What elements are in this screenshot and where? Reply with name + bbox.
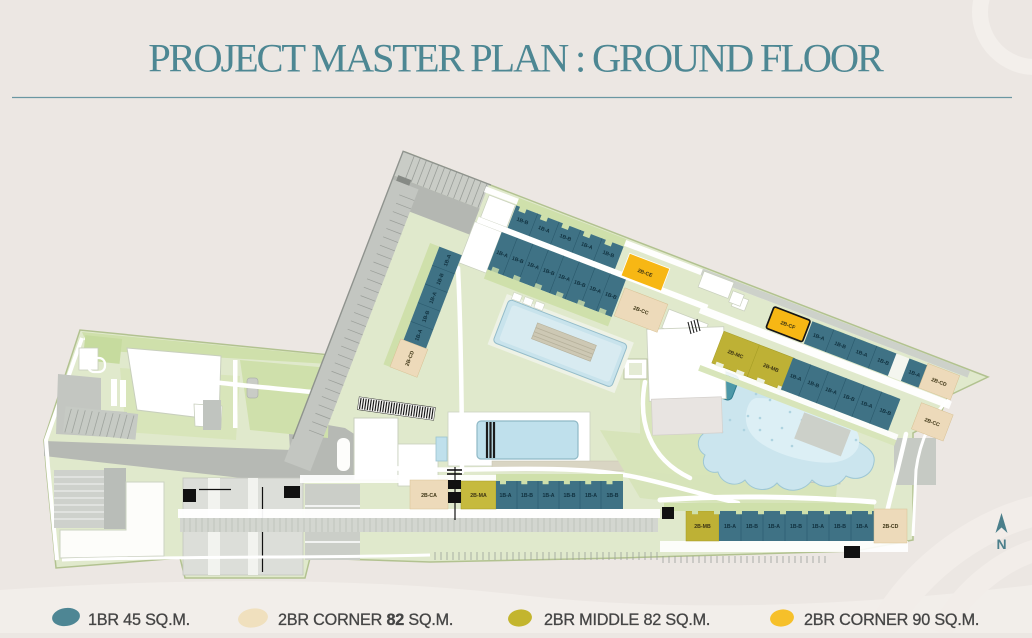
svg-text:1B-A: 1B-A <box>768 524 780 530</box>
svg-text:PROJECT MASTER PLAN : GROUND F: PROJECT MASTER PLAN : GROUND FLOOR <box>148 36 884 81</box>
svg-text:2B-CD: 2B-CD <box>883 524 899 530</box>
svg-text:1B-A: 1B-A <box>585 493 597 499</box>
svg-text:2BR MIDDLE 82 SQ.M.: 2BR MIDDLE 82 SQ.M. <box>544 611 710 629</box>
svg-text:1B-A: 1B-A <box>812 524 824 530</box>
svg-text:2B-MB: 2B-MB <box>694 524 711 530</box>
svg-text:1B-B: 1B-B <box>563 493 575 499</box>
svg-text:1B-A: 1B-A <box>542 493 554 499</box>
svg-text:1B-B: 1B-B <box>521 493 533 499</box>
svg-text:1BR 45 SQ.M.: 1BR 45 SQ.M. <box>88 611 190 629</box>
svg-text:1B-B: 1B-B <box>606 493 618 499</box>
svg-text:1B-A: 1B-A <box>856 524 868 530</box>
svg-text:N: N <box>996 536 1006 552</box>
svg-text:1B-A: 1B-A <box>499 493 511 499</box>
svg-text:2BR CORNER 90 SQ.M.: 2BR CORNER 90 SQ.M. <box>804 611 979 629</box>
svg-text:1B-B: 1B-B <box>834 524 846 530</box>
svg-text:2BR CORNER 82 SQ.M.: 2BR CORNER 82 SQ.M. <box>278 611 453 629</box>
svg-text:2B-CA: 2B-CA <box>421 493 437 499</box>
svg-text:1B-B: 1B-B <box>790 524 802 530</box>
svg-text:2B-MA: 2B-MA <box>470 493 487 499</box>
svg-text:1B-A: 1B-A <box>724 524 736 530</box>
svg-text:1B-B: 1B-B <box>746 524 758 530</box>
